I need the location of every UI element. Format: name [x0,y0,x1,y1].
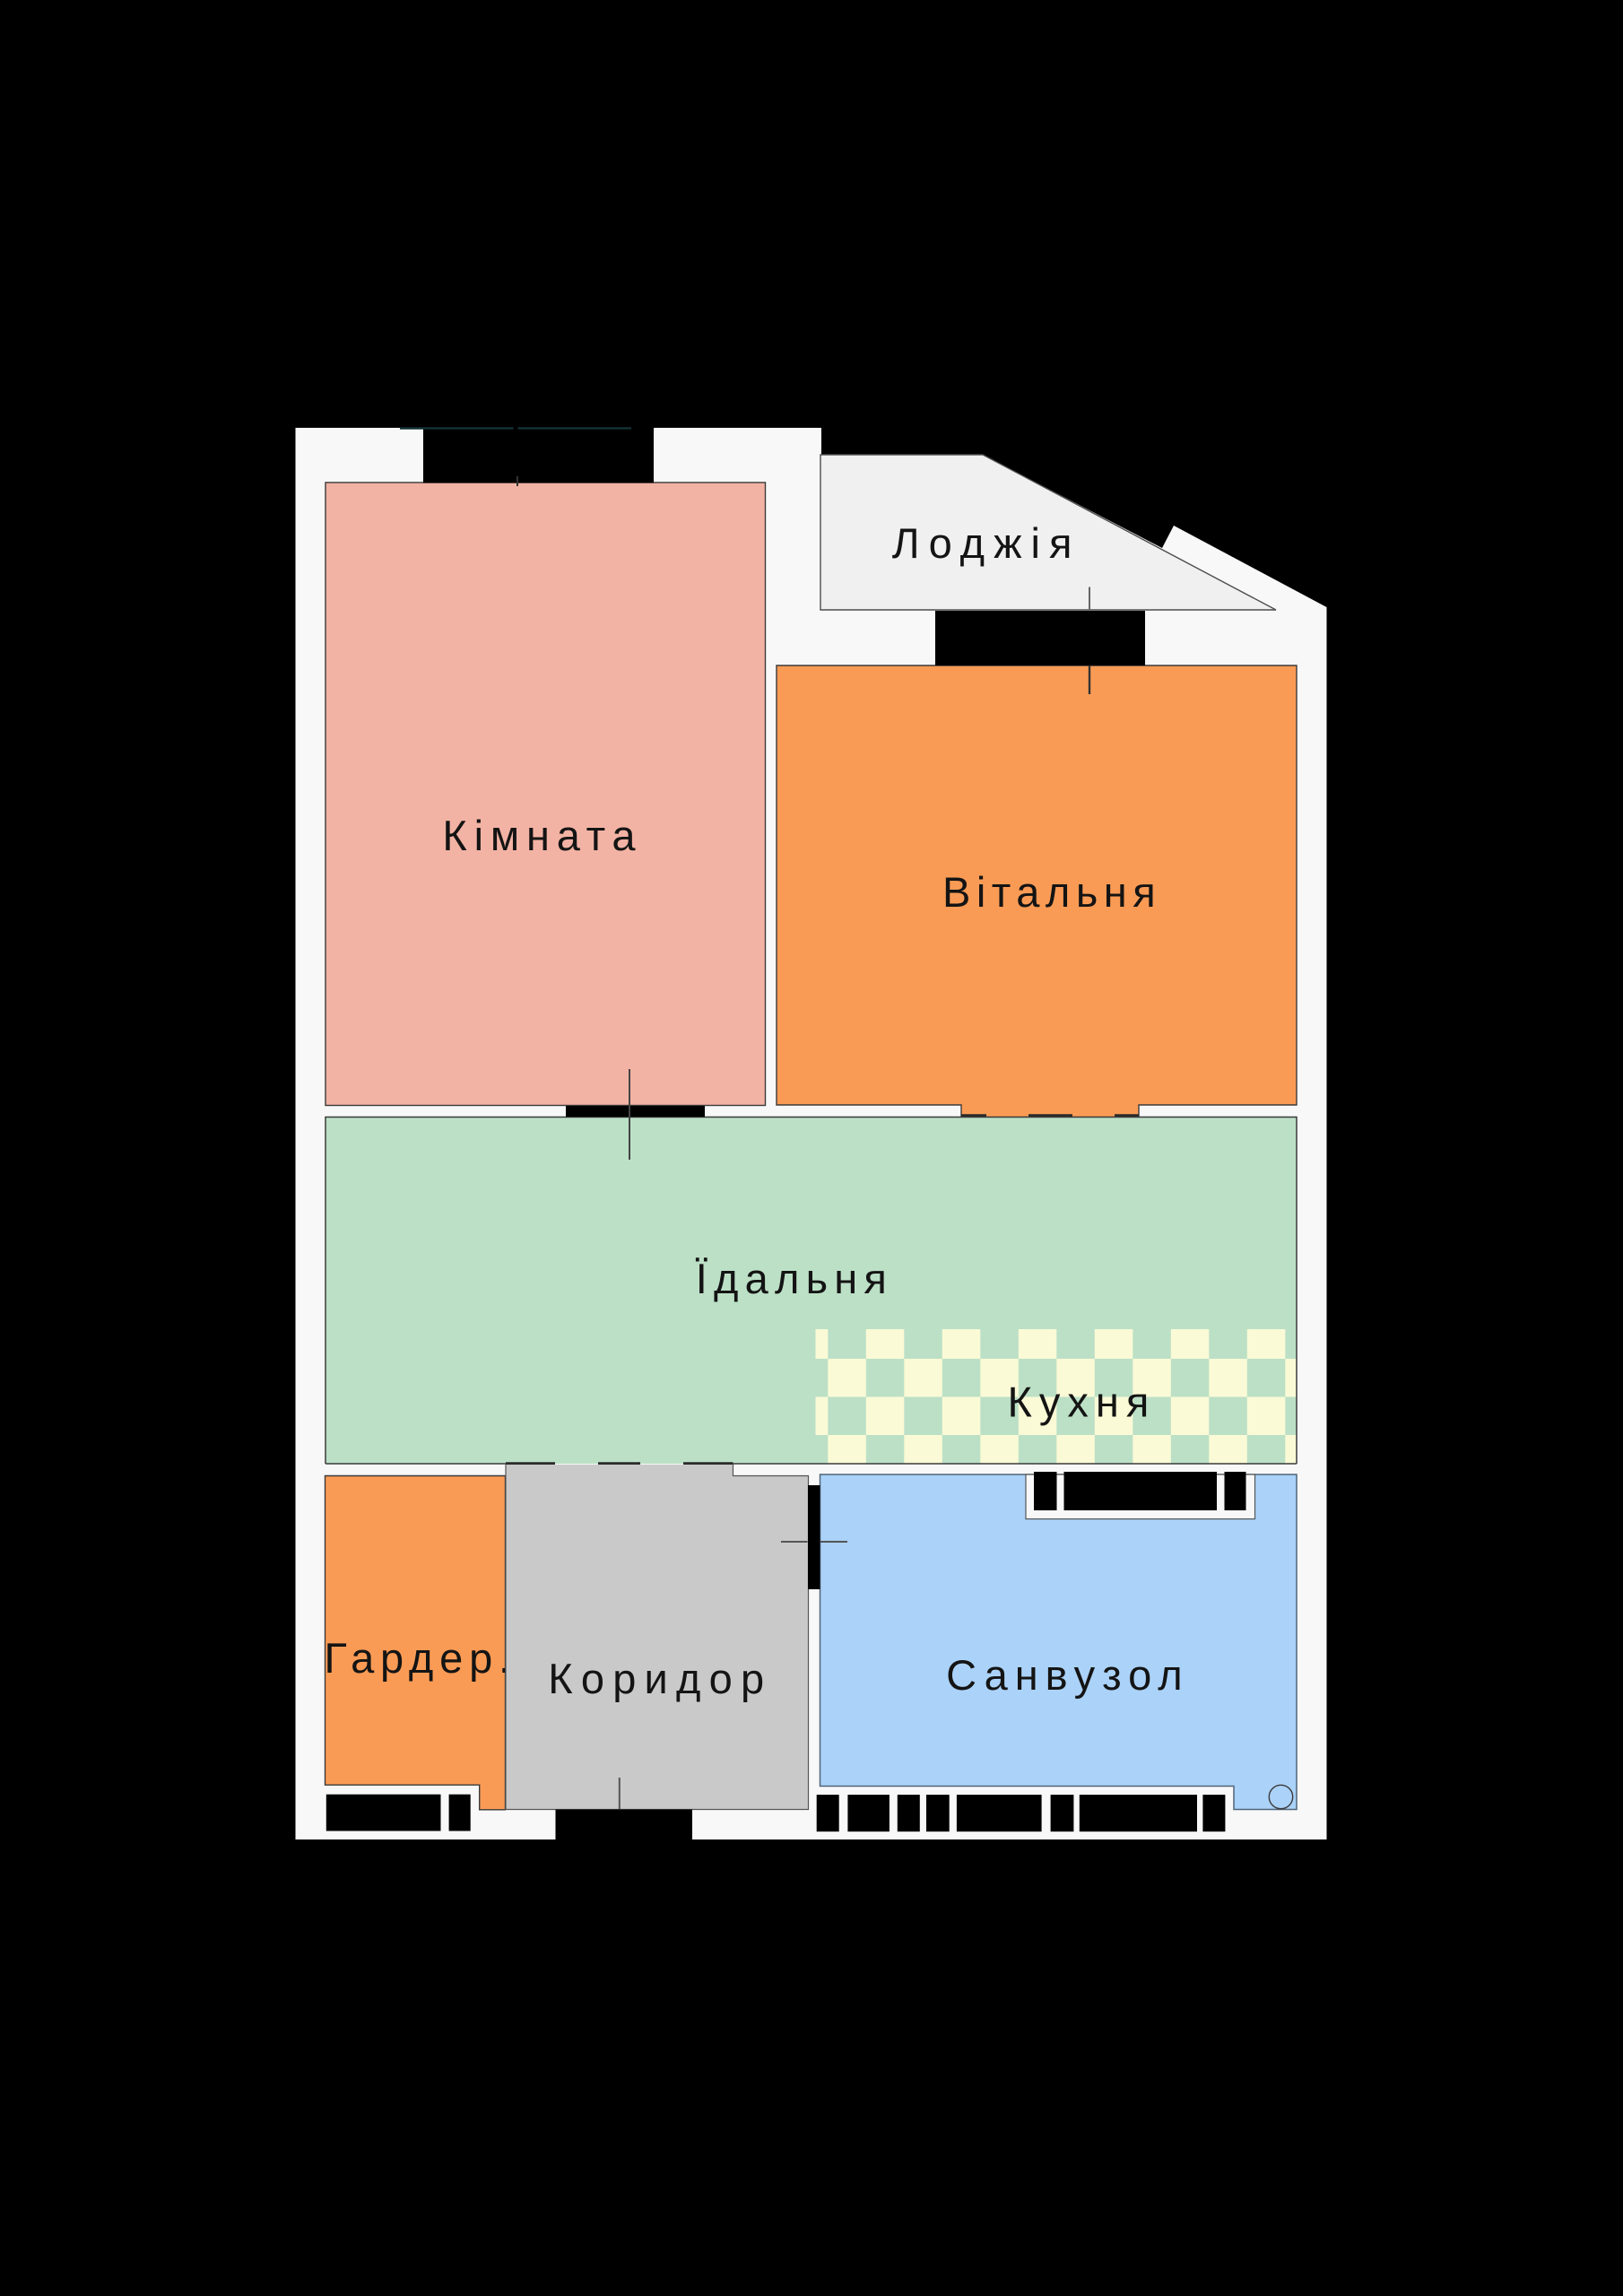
svg-text:Санвузол: Санвузол [946,1651,1190,1699]
svg-text:Вітальня: Вітальня [942,868,1161,916]
svg-text:Їдальня: Їдальня [696,1255,893,1302]
svg-text:Кухня: Кухня [1008,1378,1157,1425]
svg-text:Лоджія: Лоджія [892,519,1081,567]
svg-text:Гардер.: Гардер. [325,1634,516,1682]
svg-text:Кімната: Кімната [442,812,642,859]
svg-text:Коридор: Коридор [548,1655,772,1702]
